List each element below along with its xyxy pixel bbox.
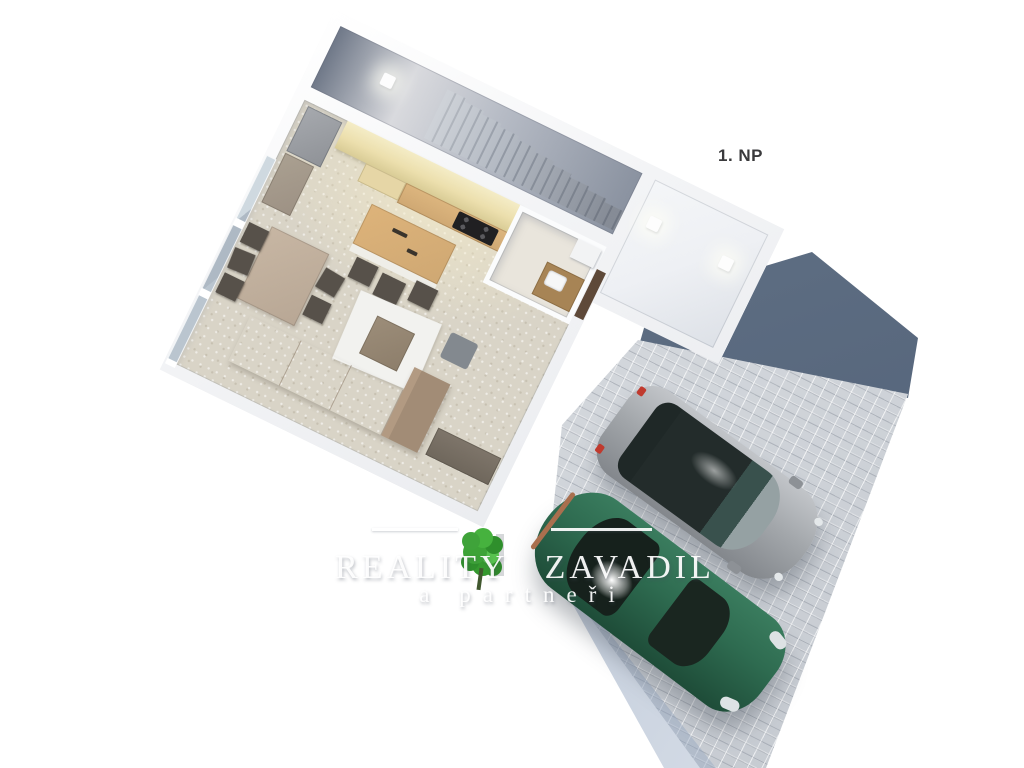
watermark-rule-right (551, 528, 652, 531)
watermark-rule-left (372, 528, 458, 531)
floor-label: 1. NP (718, 146, 763, 166)
tree-leaves-icon (462, 532, 480, 550)
watermark-subtitle: a partneři (398, 582, 648, 608)
ceiling-light (379, 72, 396, 89)
floorplan-render: REALITY ZAVADIL a partneři 1. NP (0, 0, 1024, 768)
front-trim (530, 491, 576, 550)
toilet-cistern (570, 239, 602, 268)
rear-window (645, 576, 741, 676)
island-item (392, 228, 408, 239)
ceiling-light (645, 215, 662, 232)
ceiling-light (717, 255, 734, 272)
island-item (406, 248, 418, 256)
